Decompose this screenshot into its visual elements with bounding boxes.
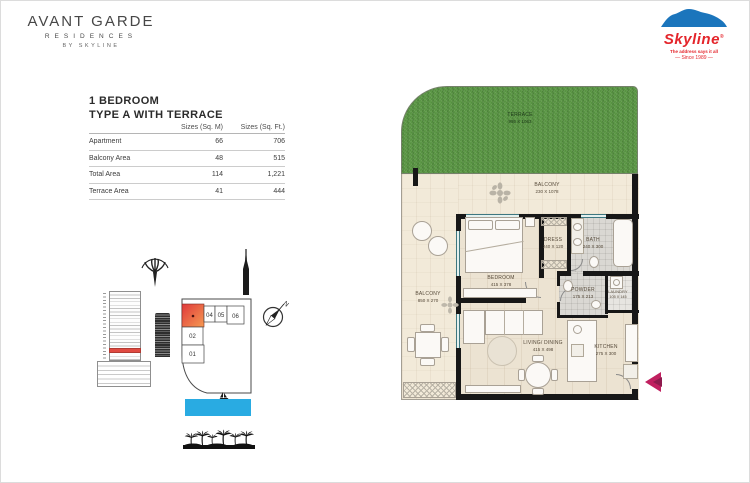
brand-by-skyline: BY SKYLINE (21, 43, 161, 49)
room-label-laundry: LAUNDRY 105 X 145 (604, 290, 632, 300)
outer-wall (456, 394, 638, 400)
skyline-logo: Skyline® The address says it all — Since… (652, 7, 736, 61)
brand-residences: RESIDENCES (21, 33, 161, 40)
plan-title: 1 BEDROOM TYPE A WITH TERRACE (89, 94, 223, 123)
wall (557, 315, 608, 318)
living-balcony-door (456, 314, 460, 348)
bathtub (613, 219, 633, 267)
wall (458, 298, 526, 303)
wall (559, 271, 571, 276)
nightstand (525, 217, 535, 227)
room-label-balcony-left: BALCONY 850 X 270 (401, 291, 455, 303)
floorplan: TERRACE 995 X 1063 BALCONY 230 X 1078 BA… (401, 86, 671, 418)
building-elevation-diagram (97, 291, 151, 391)
room-label-terrace: TERRACE 995 X 1063 (480, 112, 560, 124)
plan-title-line1: 1 BEDROOM (89, 94, 223, 108)
pillow (468, 220, 493, 230)
kitchen-counter (625, 324, 638, 362)
bedroom-side-window (456, 231, 460, 276)
powder-sink (591, 300, 601, 309)
terrace-area (401, 86, 638, 174)
skyline-tagline: The address says it all (652, 49, 736, 54)
tower-photo-silhouette (155, 313, 170, 357)
washer-drum (613, 279, 620, 286)
unit-06-label: 06 (232, 314, 239, 320)
table-row: Terrace Area 41 444 (89, 184, 285, 201)
wall (605, 310, 639, 313)
skyline-name: Skyline® (652, 31, 736, 48)
floor-number-ticks (103, 293, 106, 359)
dining-chair (518, 369, 525, 381)
balcony-chair (441, 337, 449, 352)
sofa-chaise (463, 310, 485, 344)
bath-window (581, 214, 606, 218)
toilet (589, 256, 599, 268)
table-row: Balcony Area 48 515 (89, 151, 285, 168)
col-sqm: Sizes (Sq. M) (165, 124, 223, 131)
skyline-since: — Since 1989 — (652, 55, 736, 61)
wall (557, 271, 560, 286)
dining-chair (532, 388, 544, 395)
skyline-cloud-icon (659, 7, 729, 29)
balcony-post (413, 168, 418, 186)
avant-garde-logo: AVANT GARDE RESIDENCES BY SKYLINE (21, 13, 161, 49)
palm-jumeirah-icon (137, 253, 173, 289)
room-label-kitchen: KITCHEN 275 X 300 (586, 344, 626, 356)
tv-console (465, 385, 521, 393)
table-row: Total Area 114 1,221 (89, 167, 285, 184)
room-label-dress: DRESS 240 X 120 (533, 237, 573, 249)
planter-box (403, 382, 456, 398)
dining-chair (532, 355, 544, 362)
sizes-table-header: Sizes (Sq. M) Sizes (Sq. Ft.) (89, 121, 285, 134)
sea-strip (185, 399, 251, 416)
dining-table (525, 362, 551, 388)
north-label: N (282, 300, 289, 309)
unit-04-label: 04 (206, 313, 213, 319)
keyplan-diagram: 04 05 06 02 01 (177, 293, 255, 397)
dining-chair (551, 369, 558, 381)
balcony-chair (407, 337, 415, 352)
fridge (623, 364, 638, 379)
palm-trees-row (183, 419, 255, 449)
podium-floors (97, 361, 151, 387)
lounge-chair (428, 236, 448, 256)
bath-sink (573, 223, 582, 231)
kitchen-sink (573, 325, 582, 334)
table-row: Apartment 66 706 (89, 134, 285, 151)
entrance-arrow-inner (653, 377, 662, 387)
burj-khalifa-icon (239, 249, 253, 295)
balcony-chair (420, 324, 435, 332)
sofa (485, 310, 543, 335)
wardrobe (463, 288, 537, 298)
col-sqft: Sizes (Sq. Ft.) (223, 124, 285, 131)
balcony-table (415, 332, 441, 358)
sizes-table: Sizes (Sq. M) Sizes (Sq. Ft.) Apartment … (89, 121, 285, 200)
lounge-chair (412, 221, 432, 241)
pillow (495, 220, 520, 230)
room-label-bath: BATH 240 X 300 (574, 237, 612, 249)
room-label-living-dining: LIVING/ DINING 415 X 498 (503, 340, 583, 352)
brand-name: AVANT GARDE (21, 13, 161, 30)
room-label-bedroom: BEDROOM 415 X 378 (461, 275, 541, 287)
highlighted-floor (109, 348, 141, 353)
balcony-chair (420, 358, 435, 366)
dress-closet (541, 260, 567, 269)
brochure-page: AVANT GARDE RESIDENCES BY SKYLINE Skylin… (0, 0, 750, 483)
wall (456, 348, 461, 400)
compass-icon: N (259, 295, 289, 331)
dress-closet (541, 217, 567, 226)
room-label-balcony-top: BALCONY 230 X 1078 (507, 182, 587, 194)
unit-02-label: 02 (189, 334, 196, 340)
wall (456, 214, 461, 231)
unit-01-label: 01 (189, 352, 196, 358)
room-label-powder: POWDER 175 X 213 (562, 287, 604, 299)
unit-05-label: 05 (218, 313, 225, 319)
